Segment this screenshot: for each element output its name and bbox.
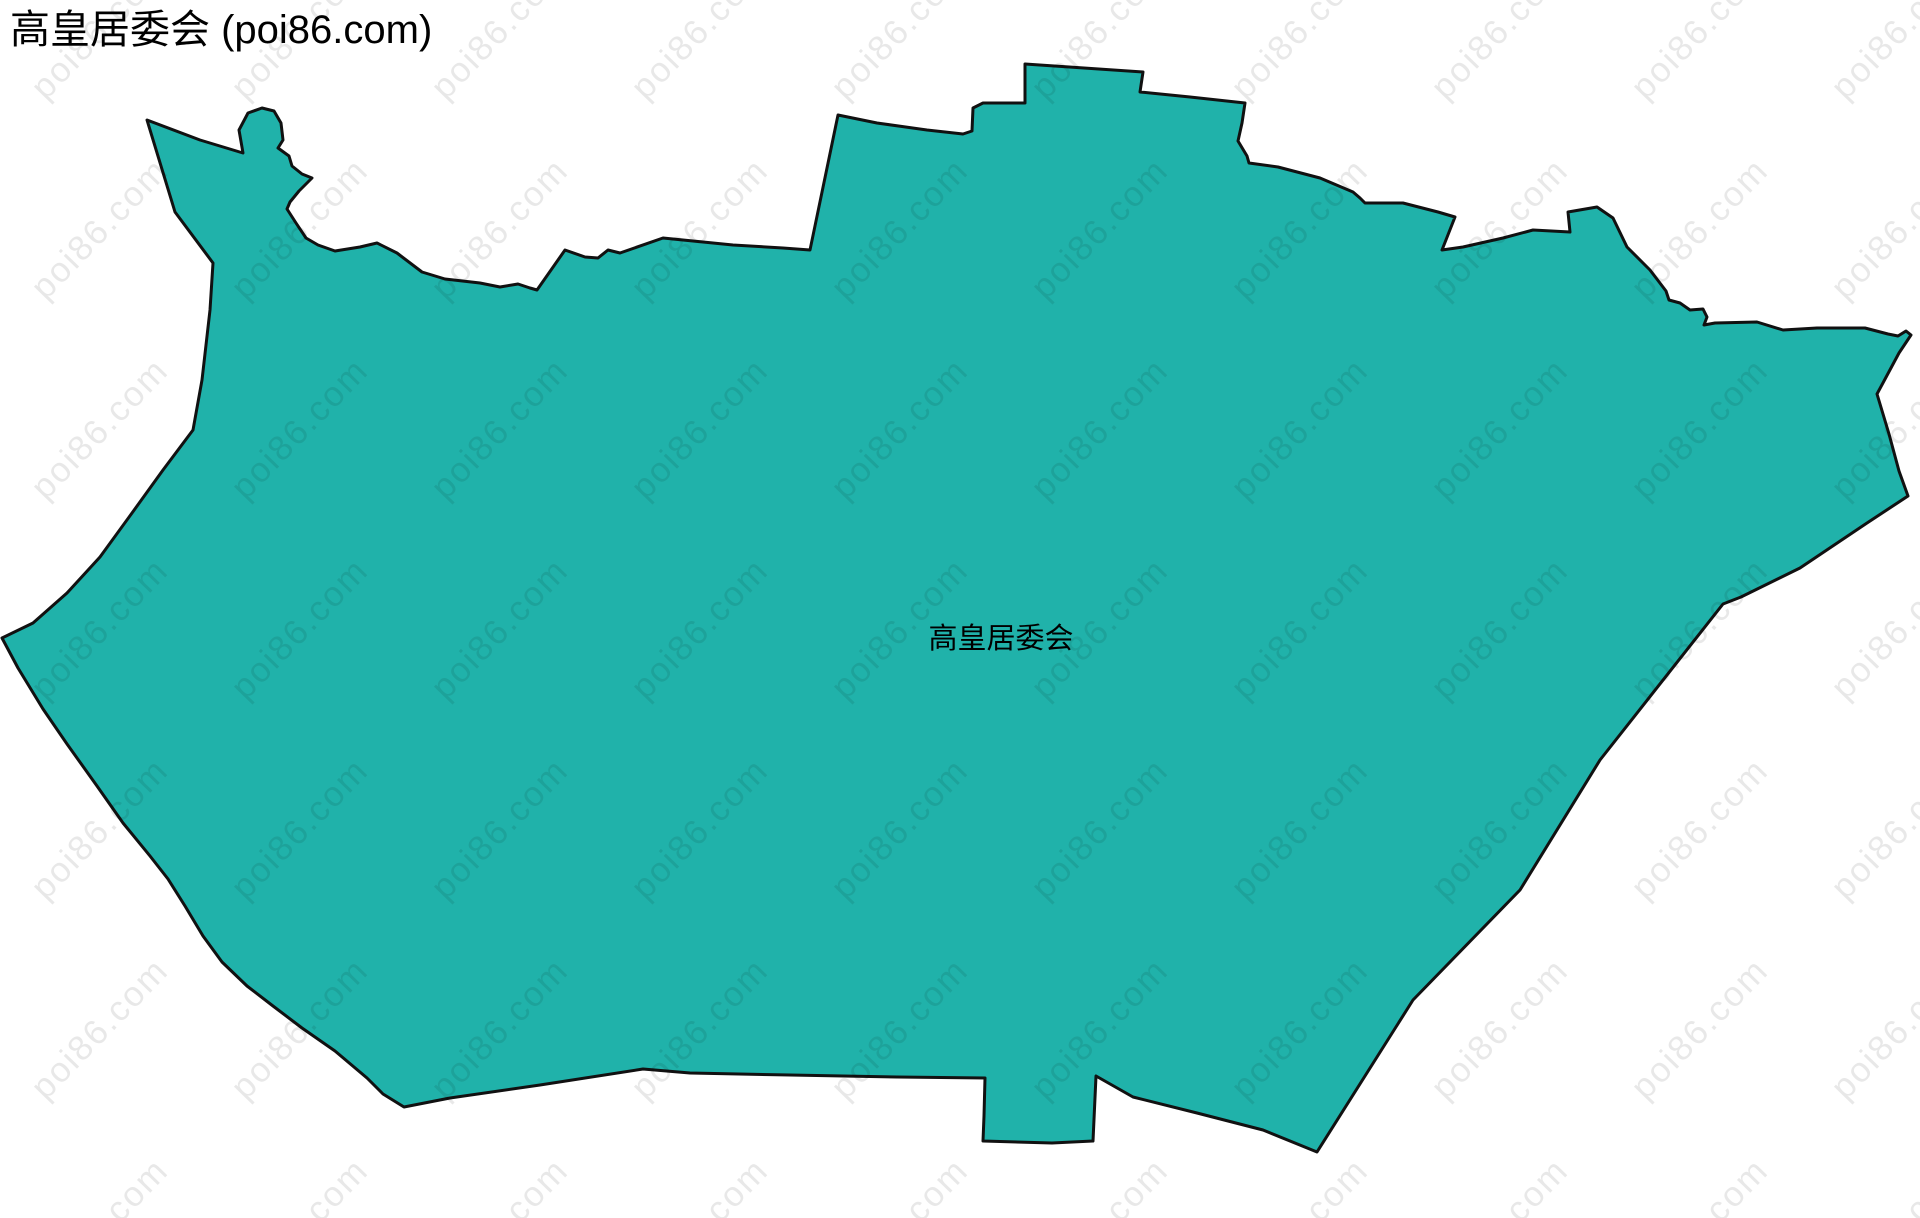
region-polygon — [2, 64, 1911, 1152]
map-canvas — [0, 0, 1920, 1218]
map-page: poi86.compoi86.compoi86.compoi86.compoi8… — [0, 0, 1920, 1218]
page-title: 高皇居委会 (poi86.com) — [10, 6, 432, 54]
region-label: 高皇居委会 — [928, 615, 1073, 657]
